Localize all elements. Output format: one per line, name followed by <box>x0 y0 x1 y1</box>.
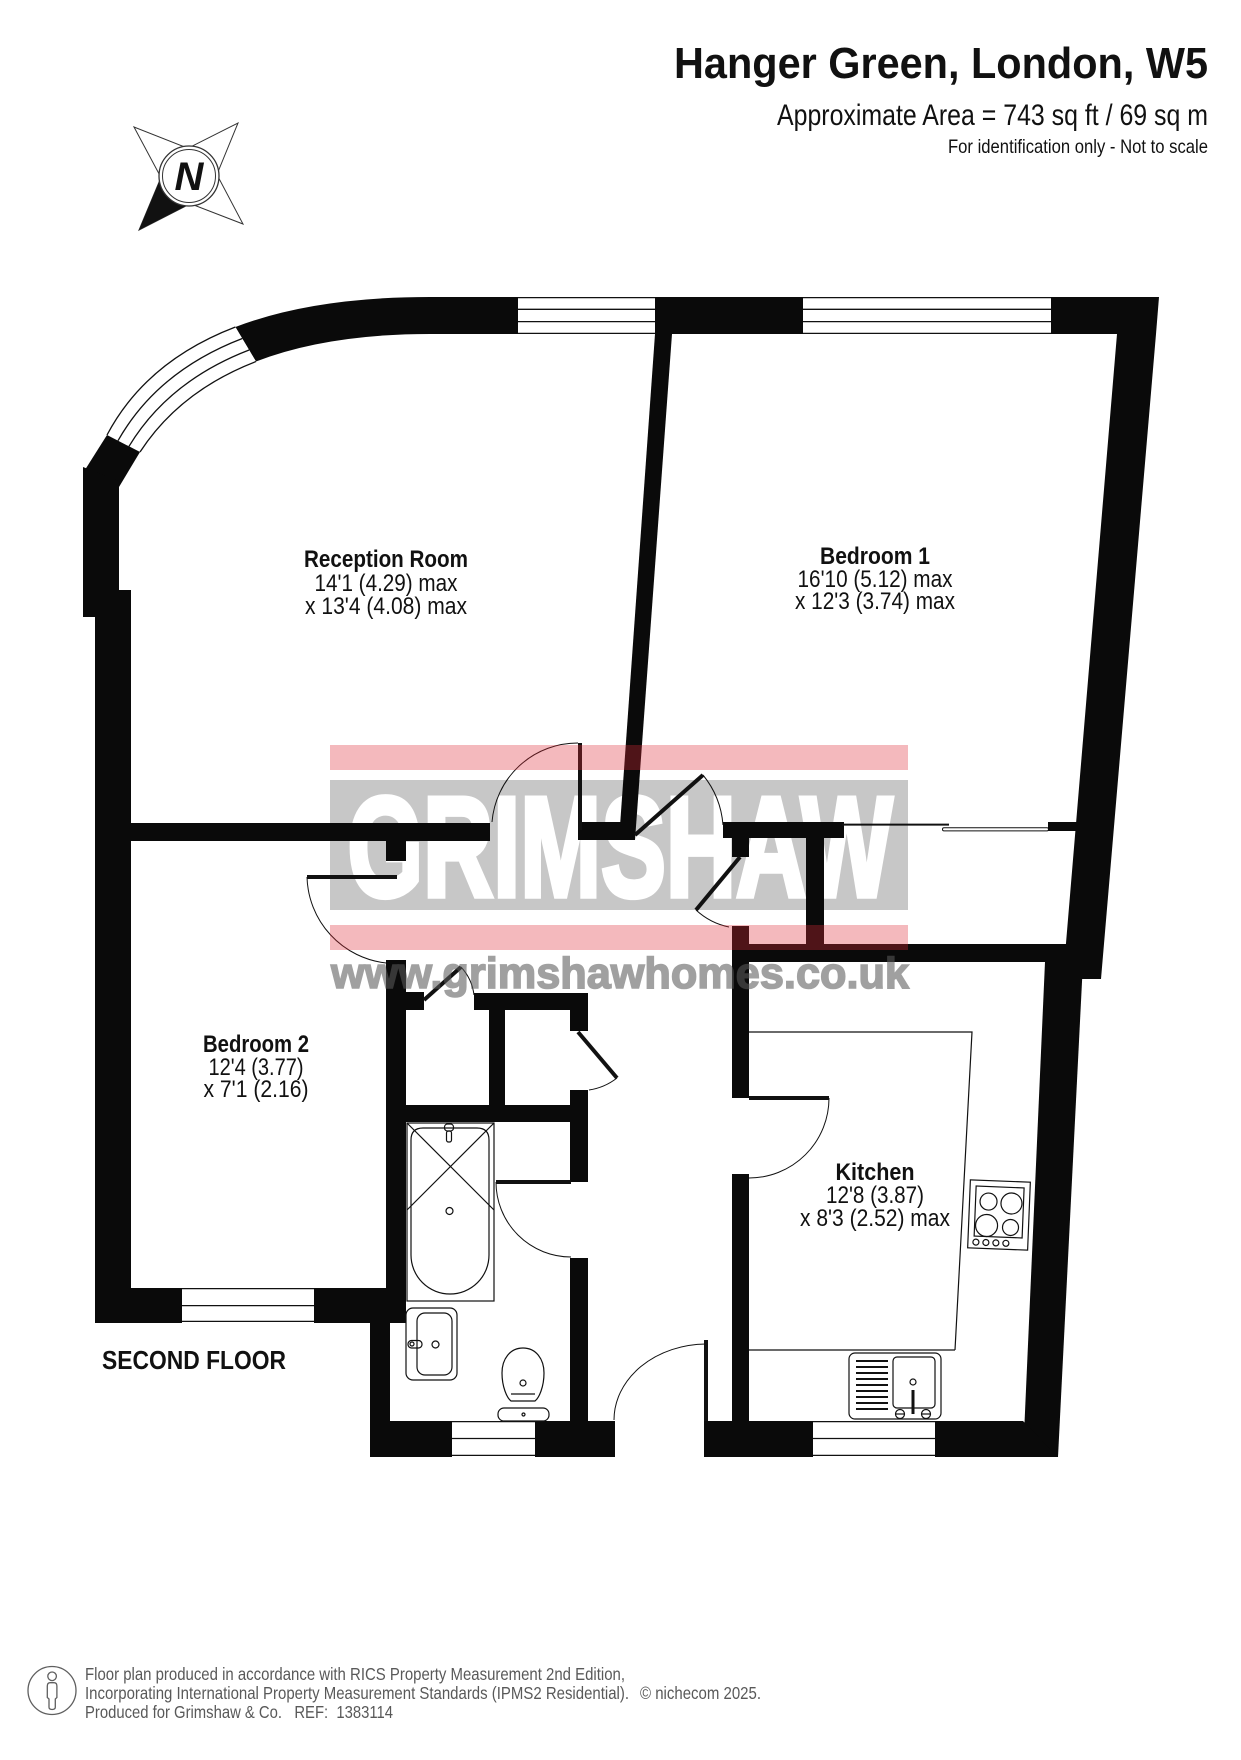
svg-text:Floor plan produced in accorda: Floor plan produced in accordance with R… <box>85 1664 625 1684</box>
svg-text:SECOND FLOOR: SECOND FLOOR <box>102 1345 286 1375</box>
svg-text:Approximate Area = 743 sq ft /: Approximate Area = 743 sq ft / 69 sq m <box>777 99 1208 132</box>
svg-text:For identification only - Not: For identification only - Not to scale <box>948 136 1208 158</box>
svg-text:x 8'3 (2.52) max: x 8'3 (2.52) max <box>800 1205 950 1232</box>
svg-text:Produced for Grimshaw & Co.: Produced for Grimshaw & Co. REF: 1383114 <box>85 1702 393 1722</box>
svg-text:N: N <box>175 155 205 199</box>
svg-text:Reception Room: Reception Room <box>304 546 468 573</box>
svg-text:Incorporating International Pr: Incorporating International Property Mea… <box>85 1683 629 1703</box>
svg-text:Hanger Green, London, W5: Hanger Green, London, W5 <box>674 39 1208 88</box>
svg-text:x 13'4 (4.08) max: x 13'4 (4.08) max <box>305 593 467 620</box>
svg-text:x 7'1 (2.16): x 7'1 (2.16) <box>204 1076 309 1103</box>
svg-text:x 12'3 (3.74) max: x 12'3 (3.74) max <box>795 588 955 615</box>
svg-text:© nichecom 2025.: © nichecom 2025. <box>640 1683 761 1703</box>
svg-text:www.grimshawhomes.co.uk: www.grimshawhomes.co.uk <box>330 949 909 998</box>
